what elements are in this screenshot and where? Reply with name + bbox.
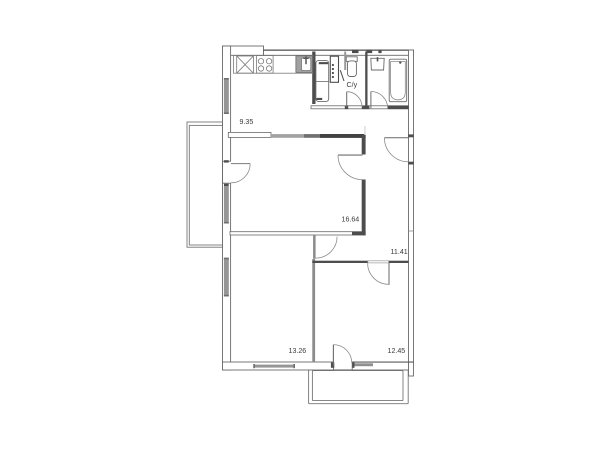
svg-text:9.35: 9.35 xyxy=(240,118,254,126)
svg-text:13.26: 13.26 xyxy=(289,347,307,355)
svg-text:С/у: С/у xyxy=(347,81,358,89)
svg-text:16.64: 16.64 xyxy=(342,215,360,223)
svg-text:11.41: 11.41 xyxy=(391,248,408,256)
svg-text:12.45: 12.45 xyxy=(388,347,406,355)
